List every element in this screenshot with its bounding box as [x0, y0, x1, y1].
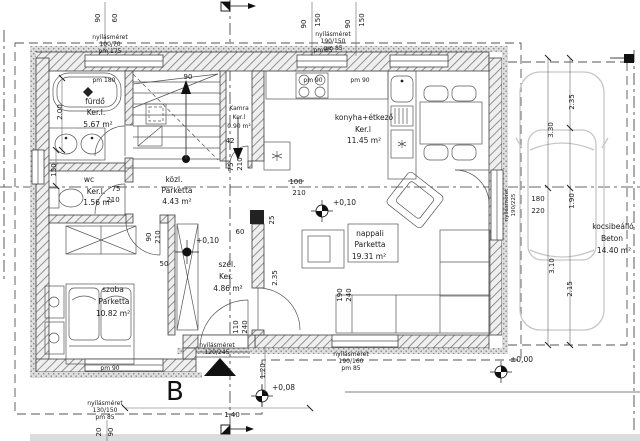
dimension-text: 90: [94, 14, 102, 23]
room-name-kocsibeallo: kocsibeálló: [592, 222, 634, 231]
dimension-text: 3.10: [548, 258, 556, 274]
opening-label: nyílásméret: [199, 342, 235, 349]
dimension-text: 50: [160, 260, 169, 268]
dimension-text: 2.00: [56, 104, 64, 120]
dimension-text: 2.15: [566, 281, 574, 297]
opening-label: 190/150: [321, 38, 346, 45]
dimension-text: 42: [226, 137, 235, 145]
dimension-text: 75: [227, 163, 235, 172]
dimension-text: 100: [289, 178, 302, 186]
opening-label: 100/70: [99, 41, 120, 48]
parapet-label-bedroom: pm 90: [100, 365, 119, 372]
room-area-szoba: 10.82 m²: [96, 309, 130, 318]
opening-label: pm 85: [341, 365, 360, 372]
dimension-text: 90: [344, 20, 352, 29]
dimension-text: 1.40: [224, 411, 240, 419]
level-text-hall: +0,10: [196, 236, 219, 245]
room-finish-kocsibeallo: Beton: [601, 234, 623, 243]
dimension-text: 25: [268, 216, 276, 225]
floor-plan-drawing: fürdő Ker.l. 5.67 m² Kamra Ker.l 0.90 m²…: [0, 0, 640, 441]
opening-label: nyílásméret: [503, 188, 510, 221]
level-text-entry: +0,08: [272, 383, 295, 392]
room-name-kamra: Kamra: [229, 105, 249, 112]
dimension-text: 240: [241, 320, 249, 333]
parapet-label-bath: pm 180: [92, 77, 115, 84]
dimension-text: 3.30: [547, 122, 555, 138]
room-area-kamra: 0.90 m²: [227, 123, 251, 130]
room-area-szel: 4.86 m²: [213, 284, 242, 293]
dimension-text: 90: [145, 233, 153, 242]
floor-plan-page: fürdő Ker.l. 5.67 m² Kamra Ker.l 0.90 m²…: [0, 0, 640, 441]
level-text-living: +0,10: [333, 198, 356, 207]
dimension-text: 90: [184, 73, 193, 81]
opening-label: 190/160: [339, 358, 364, 365]
room-name-kozl: közl.: [165, 175, 182, 184]
dimension-text: 90: [107, 428, 115, 437]
opening-label: 190/225: [511, 193, 517, 216]
dimension-text: 210: [154, 230, 162, 243]
dimension-text: 60: [236, 228, 245, 236]
room-area-furdo: 5.67 m²: [83, 120, 112, 129]
dimension-text: 210: [292, 189, 305, 197]
room-area-kocsibeallo: 14.40 m²: [597, 246, 631, 255]
opening-label: 130/150: [93, 407, 118, 414]
opening-label: nyílásméret: [315, 31, 351, 38]
room-finish-kozl: Parketta: [161, 186, 192, 195]
dimension-text: 110: [232, 320, 240, 333]
opening-label: pm 175: [98, 48, 121, 55]
room-area-kozl: 4.43 m²: [162, 197, 191, 206]
dimension-text: 240: [345, 288, 353, 301]
level-text-terrace: ±0,00: [510, 355, 533, 364]
parapet-label-kitchen-left: pm 90: [303, 77, 322, 84]
room-name-nappali: nappali: [356, 229, 384, 238]
section-letter-b: B: [166, 377, 184, 407]
room-finish-konyha: Ker.l: [355, 125, 371, 134]
dimension-text: 210: [236, 157, 244, 170]
opening-label: nyílásméret: [87, 400, 123, 407]
opening-label: nyílásméret: [333, 351, 369, 358]
opening-label: pm 85: [95, 414, 114, 421]
dimension-text: 150: [314, 13, 322, 26]
dimension-text: 2.35: [568, 94, 576, 110]
dimension-text: 150: [358, 13, 366, 26]
room-finish-furdo: Ker.l.: [87, 108, 105, 117]
bottom-paving-band: [30, 434, 640, 441]
dimension-text: 1.20: [259, 363, 267, 379]
dimension-text: 75: [112, 185, 121, 193]
dimension-text: 150: [50, 163, 58, 176]
dimension-text: 220: [531, 207, 544, 215]
opening-label: nyílásméret: [92, 34, 128, 41]
opening-label: 120/245: [205, 349, 230, 356]
dimension-text: 2.35: [271, 270, 279, 286]
room-name-wc: wc: [84, 175, 94, 184]
room-name-konyha: konyha+étkező: [335, 113, 394, 122]
room-finish-kamra: Ker.l: [233, 114, 246, 121]
room-area-nappali: 19.31 m²: [352, 252, 386, 261]
dimension-text: 210: [106, 196, 119, 204]
parapet-label-kitchen-right: pm 90: [350, 77, 369, 84]
dimension-text: 1.90: [568, 193, 576, 209]
section-marker-right: [624, 54, 634, 63]
dimension-text: 20: [95, 428, 103, 437]
room-name-szoba: szoba: [102, 285, 124, 294]
dimension-text: 90: [300, 20, 308, 29]
room-name-szel: szél.: [219, 260, 236, 269]
room-finish-szoba: Parketta: [98, 297, 129, 306]
dimension-text: 60: [111, 14, 119, 23]
room-finish-nappali: Parketta: [354, 240, 385, 249]
dimension-text: 180: [531, 195, 544, 203]
dimension-text: 190: [336, 288, 344, 301]
room-finish-wc: Ker.l.: [87, 187, 105, 196]
room-name-furdo: fürdő: [85, 97, 105, 106]
room-finish-szel: Ker.: [219, 272, 233, 281]
structural-column: [250, 210, 264, 224]
parapet-label-kitchen-window: pm 85: [313, 47, 332, 54]
room-area-konyha: 11.45 m²: [347, 136, 381, 145]
